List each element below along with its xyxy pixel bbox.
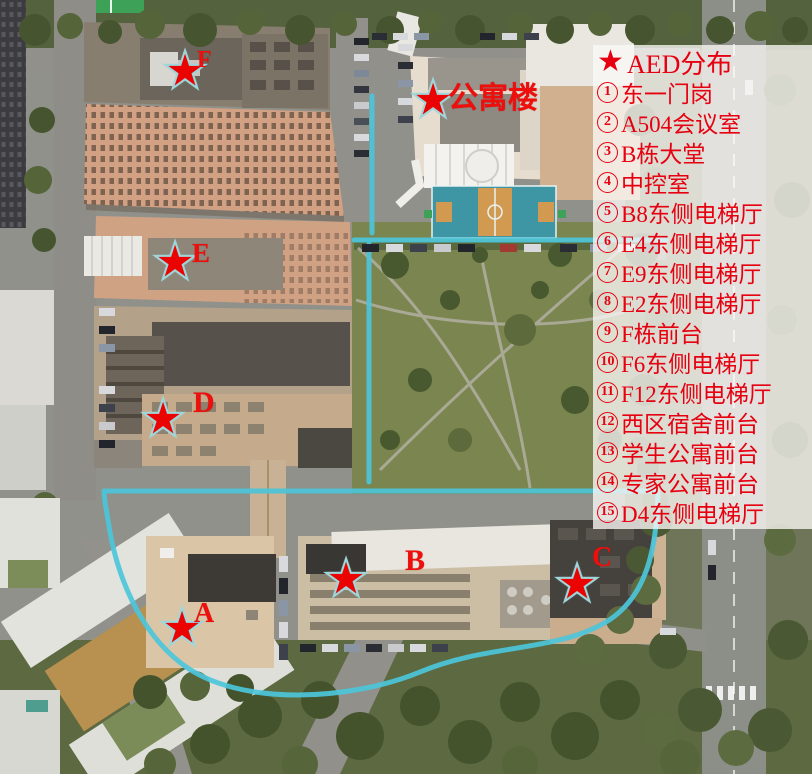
legend-item-number: 6 xyxy=(597,232,618,253)
building-e-block xyxy=(84,216,352,306)
legend-item-1: 1东一门岗 xyxy=(597,77,812,107)
legend-panel: ★ AED分布 1东一门岗 2A504会议室 3B栋大堂 4中控室 5B8东侧电… xyxy=(593,45,812,529)
legend-item-label: B栋大堂 xyxy=(621,135,705,169)
legend-item-number: 14 xyxy=(597,472,618,493)
legend-item-label: E4东侧电梯厅 xyxy=(621,225,762,259)
pool xyxy=(26,700,48,712)
building-f-complex xyxy=(84,22,344,222)
legend-item-11: 11F12东侧电梯厅 xyxy=(597,377,812,407)
legend-item-number: 12 xyxy=(597,412,618,433)
legend-item-label: B8东侧电梯厅 xyxy=(621,195,763,229)
building-label-c: C xyxy=(592,544,612,572)
legend-item-number: 13 xyxy=(597,442,618,463)
legend-item-3: 3B栋大堂 xyxy=(597,137,812,167)
legend-item-label: F12东侧电梯厅 xyxy=(621,375,772,409)
legend-item-label: F栋前台 xyxy=(621,315,703,349)
legend-item-14: 14专家公寓前台 xyxy=(597,467,812,497)
legend-item-label: E2东侧电梯厅 xyxy=(621,285,762,319)
legend-item-number: 8 xyxy=(597,292,618,313)
building-b-block xyxy=(298,524,560,640)
legend-item-number: 9 xyxy=(597,322,618,343)
basketball-court xyxy=(424,186,566,238)
legend-item-number: 3 xyxy=(597,142,618,163)
legend-item-number: 5 xyxy=(597,202,618,223)
legend-item-number: 10 xyxy=(597,352,618,373)
building-label-f: F xyxy=(197,48,212,72)
building-label-a: A xyxy=(194,600,214,628)
star-icon: ★ xyxy=(597,47,624,77)
legend-item-5: 5B8东侧电梯厅 xyxy=(597,197,812,227)
legend-item-label: E9东侧电梯厅 xyxy=(621,255,762,289)
legend-title-row: ★ AED分布 xyxy=(597,47,812,77)
legend-item-2: 2A504会议室 xyxy=(597,107,812,137)
legend-item-number: 15 xyxy=(597,502,618,523)
legend-item-label: A504会议室 xyxy=(621,105,741,139)
legend-item-label: D4东侧电梯厅 xyxy=(621,495,764,529)
legend-item-number: 4 xyxy=(597,172,618,193)
legend-item-9: 9F栋前台 xyxy=(597,317,812,347)
legend-item-label: 中控室 xyxy=(621,165,690,199)
west-white-building xyxy=(0,290,54,405)
building-label-e: E xyxy=(192,240,210,267)
legend-item-label: 东一门岗 xyxy=(621,75,713,109)
legend-item-label: 专家公寓前台 xyxy=(621,465,759,499)
legend-item-label: F6东侧电梯厅 xyxy=(621,345,760,379)
legend-item-number: 1 xyxy=(597,82,618,103)
building-d-complex xyxy=(94,306,352,468)
legend-item-6: 6E4东侧电梯厅 xyxy=(597,227,812,257)
legend-item-12: 12西区宿舍前台 xyxy=(597,407,812,437)
legend-item-10: 10F6东侧电梯厅 xyxy=(597,347,812,377)
legend-item-15: 15D4东侧电梯厅 xyxy=(597,497,812,527)
legend-item-13: 13学生公寓前台 xyxy=(597,437,812,467)
legend-item-label: 学生公寓前台 xyxy=(621,435,759,469)
legend-item-4: 4中控室 xyxy=(597,167,812,197)
building-label-apartment: 公寓楼 xyxy=(448,84,538,114)
legend-item-number: 2 xyxy=(597,112,618,133)
building-label-d: D xyxy=(193,388,215,418)
legend-item-8: 8E2东侧电梯厅 xyxy=(597,287,812,317)
legend-item-label: 西区宿舍前台 xyxy=(621,405,759,439)
legend-item-7: 7E9东侧电梯厅 xyxy=(597,257,812,287)
campus-aed-map: ★ ★ ★ ★ ★ ★ ★ F 公寓楼 E D A B C ★ AED分布 1东… xyxy=(0,0,812,774)
legend-item-number: 11 xyxy=(597,382,618,403)
building-label-b: B xyxy=(405,546,425,576)
legend-item-number: 7 xyxy=(597,262,618,283)
